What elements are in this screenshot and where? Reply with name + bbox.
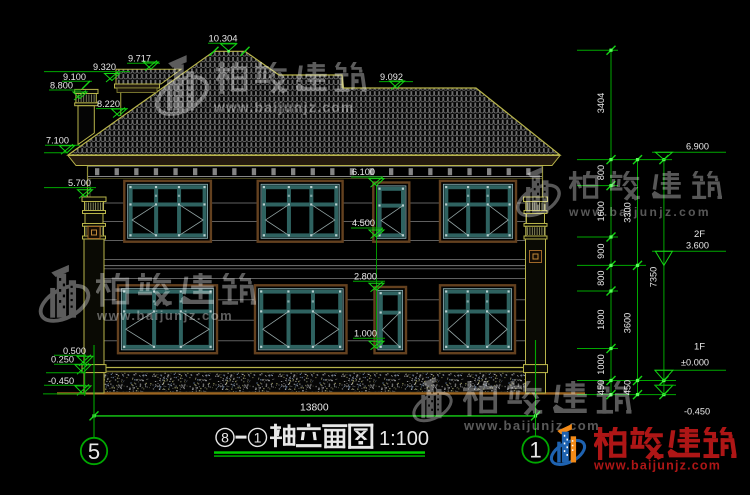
svg-text:-0.450: -0.450 bbox=[48, 376, 74, 386]
svg-text:2.800: 2.800 bbox=[354, 272, 377, 282]
svg-text:3404: 3404 bbox=[596, 93, 606, 113]
svg-text:4.500: 4.500 bbox=[352, 218, 375, 228]
svg-text:www.baijunjz.com: www.baijunjz.com bbox=[463, 418, 600, 433]
svg-text:www.baijunjz.com: www.baijunjz.com bbox=[568, 205, 711, 219]
svg-text:1: 1 bbox=[254, 429, 262, 445]
svg-text:1:100: 1:100 bbox=[379, 428, 429, 450]
svg-text:7.100: 7.100 bbox=[46, 136, 69, 146]
svg-text:1.000: 1.000 bbox=[354, 329, 377, 339]
svg-text:8.800: 8.800 bbox=[50, 81, 73, 91]
svg-text:9.320: 9.320 bbox=[93, 62, 116, 72]
svg-text:www.baijunjz.com: www.baijunjz.com bbox=[96, 308, 233, 323]
svg-text:3600: 3600 bbox=[623, 313, 633, 333]
svg-text:1000: 1000 bbox=[596, 354, 606, 374]
svg-text:-0.450: -0.450 bbox=[684, 407, 710, 417]
svg-text:6.100: 6.100 bbox=[352, 167, 375, 177]
svg-text:2F: 2F bbox=[694, 229, 705, 240]
svg-text:5: 5 bbox=[88, 439, 100, 464]
svg-text:7350: 7350 bbox=[649, 267, 659, 287]
svg-text:±0.000: ±0.000 bbox=[681, 358, 709, 368]
svg-text:0.250: 0.250 bbox=[51, 355, 74, 365]
svg-text:5.700: 5.700 bbox=[68, 178, 91, 188]
svg-text:8.220: 8.220 bbox=[97, 99, 120, 109]
svg-text:www.baijunjz.com: www.baijunjz.com bbox=[593, 459, 721, 473]
svg-text:800: 800 bbox=[596, 271, 606, 286]
svg-text:1: 1 bbox=[529, 438, 541, 463]
svg-text:900: 900 bbox=[596, 244, 606, 259]
svg-text:www.baijunjz.com: www.baijunjz.com bbox=[213, 100, 355, 115]
svg-text:3.600: 3.600 bbox=[686, 241, 709, 251]
svg-text:6.900: 6.900 bbox=[686, 142, 709, 152]
svg-text:8: 8 bbox=[221, 429, 229, 445]
svg-text:13800: 13800 bbox=[300, 403, 329, 414]
svg-text:1F: 1F bbox=[694, 342, 705, 353]
svg-text:1800: 1800 bbox=[596, 309, 606, 329]
